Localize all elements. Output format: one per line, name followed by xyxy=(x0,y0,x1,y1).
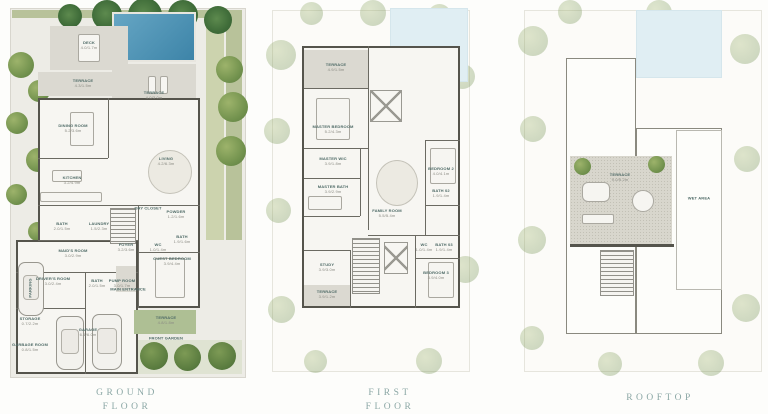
tree-icon xyxy=(518,226,546,254)
room-label-bedroom2: BEDROOM 24.0/4.1m xyxy=(428,167,454,177)
wall xyxy=(85,272,86,374)
wall xyxy=(304,250,350,251)
room-label-study: STUDY3.9/3.0m xyxy=(319,263,336,273)
room-label-wc-first: WC1.0/1.4m xyxy=(416,243,433,253)
tree-icon xyxy=(6,184,27,205)
tree-icon xyxy=(416,348,442,374)
wall xyxy=(425,140,460,141)
car-illustration xyxy=(92,314,122,370)
room-label-bath03: BATH 031.9/1.4m xyxy=(435,243,452,253)
caption-first-floor: FIRST FLOOR xyxy=(320,387,460,414)
room-label-garage: GARAGE6.1/6.0m xyxy=(79,328,98,338)
void-shaft xyxy=(370,90,402,122)
wall xyxy=(368,46,369,230)
caption-rooftop: ROOFTOP xyxy=(590,392,730,406)
room-label-terrace-top: TERRACE4.9/1.5m xyxy=(326,63,346,73)
wall xyxy=(425,205,460,206)
void-shaft xyxy=(384,242,408,274)
room-label-guest-bedroom: GUEST BEDROOM3.9/4.4m xyxy=(153,257,191,267)
round-table xyxy=(632,190,654,212)
room-label-storage: STORAGE0.7/2.2m xyxy=(20,317,41,327)
caption-line: FLOOR xyxy=(366,402,415,412)
wall xyxy=(304,216,360,217)
room-label-maids-room: MAID'S ROOM3.0/2.9m xyxy=(58,249,87,259)
wall xyxy=(38,205,200,206)
room-label-wet-area: WET AREA xyxy=(688,196,710,201)
bush-icon xyxy=(174,344,201,371)
caption-line: GROUND xyxy=(96,388,158,398)
tree-icon xyxy=(698,350,724,376)
wall xyxy=(138,252,200,253)
tree-icon xyxy=(598,352,622,376)
tree-icon xyxy=(266,40,296,70)
tree-icon xyxy=(8,52,34,78)
room-label-master-bath: MASTER BATH3.9/2.9m xyxy=(318,185,349,195)
caption-line: FLOOR xyxy=(103,402,152,412)
room-label-laundry: LAUNDRY1.5/2.3m xyxy=(89,222,110,232)
wet-area-enclosure xyxy=(676,130,722,290)
wall xyxy=(138,205,139,308)
first-floor-plan: TERRACE4.9/1.5m MASTER BEDROOM5.2/4.3m M… xyxy=(260,0,475,380)
wall xyxy=(108,98,109,158)
family-rug xyxy=(376,160,418,206)
caption-line: ROOFTOP xyxy=(626,393,694,403)
room-label-terrace-small: TERRACE3.9/1.2m xyxy=(317,290,337,300)
wall xyxy=(38,158,108,159)
staircase xyxy=(352,238,380,294)
tree-icon xyxy=(304,350,327,373)
wall xyxy=(304,178,360,179)
room-label-powder: POWDER1.2/1.6m xyxy=(167,210,186,220)
room-label-master-bedroom: MASTER BEDROOM5.2/4.3m xyxy=(312,125,353,135)
tree-icon xyxy=(300,2,323,25)
palm-tree-icon xyxy=(204,6,232,34)
tree-icon xyxy=(218,92,248,122)
planter-tree-icon xyxy=(648,156,665,173)
tree-icon xyxy=(360,0,386,26)
wall xyxy=(425,140,426,235)
tree-icon xyxy=(520,116,546,142)
caption-ground-floor: GROUND FLOOR xyxy=(57,387,197,414)
wall xyxy=(415,258,460,259)
room-label-bath02: BATH 021.9/1.4m xyxy=(432,189,449,199)
tree-icon xyxy=(730,34,760,64)
sofa xyxy=(582,214,614,224)
tree-icon xyxy=(216,136,246,166)
staircase xyxy=(600,250,634,296)
bush-icon xyxy=(140,342,168,370)
tree-icon xyxy=(518,26,548,56)
floorplan-sheet: DECK4.0/1.7m TERRACE4.3/1.5m TERRACE4.0/… xyxy=(0,0,768,414)
hedge-strip-right xyxy=(226,10,242,240)
room-label-front-garden: FRONT GARDEN xyxy=(149,336,183,341)
wall xyxy=(350,250,351,308)
room-label-deck: DECK4.0/1.7m xyxy=(81,41,98,51)
rooftop-plan: TERRACE9.0/5.2m WET AREA xyxy=(516,0,768,380)
room-label-terrace-pool: TERRACE4.0/3.0m xyxy=(144,91,164,101)
room-label-drivers-room: DRIVER'S ROOM3.0/2.4m xyxy=(36,277,70,287)
room-label-kitchen: KITCHEN3.2/4.9m xyxy=(63,176,82,186)
pool-below-outline xyxy=(636,10,722,78)
wall xyxy=(368,235,460,236)
car-roof xyxy=(97,328,117,354)
wall xyxy=(304,88,368,89)
car-illustration xyxy=(56,316,84,370)
ground-floor-plan: DECK4.0/1.7m TERRACE4.3/1.5m TERRACE4.0/… xyxy=(0,0,250,380)
tree-icon xyxy=(520,326,544,350)
wall xyxy=(304,148,368,149)
car-roof xyxy=(61,329,79,354)
tree-icon xyxy=(6,112,28,134)
room-label-rooftop-terrace: TERRACE9.0/5.2m xyxy=(610,173,630,183)
wall xyxy=(360,148,361,216)
room-label-living: LIVING4.2/6.3m xyxy=(158,157,175,167)
room-label-terrace-nw: TERRACE4.3/1.5m xyxy=(73,79,93,89)
room-label-dining: DINING ROOM5.2/3.6m xyxy=(58,124,87,134)
room-label-bedroom3: BEDROOM 33.9/4.0m xyxy=(423,271,449,281)
kitchen-counter xyxy=(40,192,102,202)
bush-icon xyxy=(208,342,236,370)
tree-icon xyxy=(264,118,290,144)
room-label-foyer: FOYER3.2/3.6m xyxy=(118,243,135,253)
room-label-master-wic: MASTER WIC3.9/1.8m xyxy=(319,157,346,167)
room-label-garbage-room: GARBAGE ROOM0.8/1.5m xyxy=(12,343,48,353)
roof-wall xyxy=(570,244,674,247)
room-label-bath-guest: BATH1.9/1.6m xyxy=(174,235,191,245)
room-label-front-terrace: TERRACE4.8/1.8m xyxy=(156,316,176,326)
room-label-dry-closet: DRY CLOSET xyxy=(134,206,161,211)
room-label-parking: PARKING xyxy=(28,278,33,297)
room-label-pump-room: PUMP ROOM3.0/1.7m xyxy=(109,279,135,289)
room-label-bath-small: BATH2.0/1.5m xyxy=(89,279,106,289)
tree-icon xyxy=(216,56,243,83)
side-lawn xyxy=(206,12,224,240)
tree-icon xyxy=(734,146,760,172)
tree-icon xyxy=(732,294,760,322)
room-label-bath-left: BATH2.0/1.5m xyxy=(54,222,71,232)
lounge-seating xyxy=(582,182,610,202)
room-label-wc: WC1.0/1.4m xyxy=(150,243,167,253)
palm-tree-icon xyxy=(58,4,82,28)
tree-icon xyxy=(268,296,295,323)
staircase xyxy=(110,208,136,244)
planter-tree-icon xyxy=(574,158,591,175)
caption-line: FIRST xyxy=(368,388,411,398)
bathtub xyxy=(308,196,342,210)
room-label-family-room: FAMILY ROOM5.5/5.4m xyxy=(372,209,401,219)
tree-icon xyxy=(266,198,291,223)
tree-icon xyxy=(558,0,582,24)
